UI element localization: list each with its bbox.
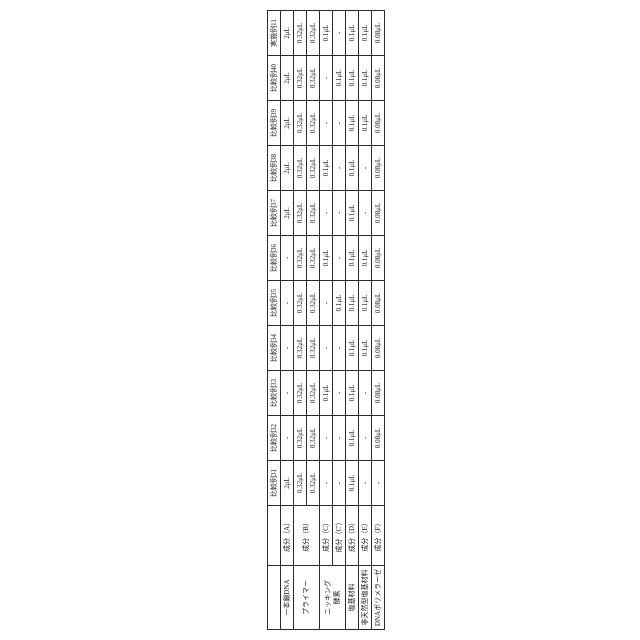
value-cell: - bbox=[372, 461, 385, 506]
value-cell: 2μL bbox=[281, 11, 294, 56]
value-cell: - bbox=[281, 236, 294, 281]
reagent-table: 比較例31比較例32比較例33比較例34比較例35比較例36比較例37比較例38… bbox=[267, 10, 385, 630]
value-cell: 0.32μL bbox=[294, 191, 307, 236]
value-cell: - bbox=[320, 416, 333, 461]
value-cell: 0.32μL bbox=[307, 371, 320, 416]
category-cell: ニッキング 酵素 bbox=[320, 566, 346, 630]
corner-header bbox=[268, 506, 281, 566]
table-row: ニッキング 酵素成分（C）--0.1μL--0.1μL-0.1μL--0.1μL bbox=[320, 11, 333, 630]
value-cell: 0.32μL bbox=[307, 236, 320, 281]
value-cell: 0.08μL bbox=[372, 236, 385, 281]
value-cell: - bbox=[359, 146, 372, 191]
value-cell: 0.1μL bbox=[346, 191, 359, 236]
value-cell: 0.32μL bbox=[307, 416, 320, 461]
table-row: プライマー成分（B）0.32μL0.32μL0.32μL0.32μL0.32μL… bbox=[294, 11, 307, 630]
col-header: 比較例34 bbox=[268, 326, 281, 371]
value-cell: 2μL bbox=[281, 191, 294, 236]
value-cell: 0.32μL bbox=[307, 56, 320, 101]
value-cell: 0.32μL bbox=[294, 416, 307, 461]
value-cell: 0.1μL bbox=[346, 56, 359, 101]
value-cell: 0.1μL bbox=[346, 371, 359, 416]
category-cell: 一本鎖DNA bbox=[281, 566, 294, 630]
value-cell: - bbox=[333, 191, 346, 236]
component-cell: 成分（C'） bbox=[333, 506, 346, 566]
value-cell: 2μL bbox=[281, 101, 294, 146]
col-header: 比較例31 bbox=[268, 461, 281, 506]
value-cell: - bbox=[333, 236, 346, 281]
value-cell: - bbox=[359, 416, 372, 461]
value-cell: 0.1μL bbox=[359, 11, 372, 56]
component-cell: 成分（F） bbox=[372, 506, 385, 566]
col-header: 比較例39 bbox=[268, 101, 281, 146]
value-cell: 0.32μL bbox=[307, 146, 320, 191]
value-cell: 0.32μL bbox=[294, 101, 307, 146]
value-cell: 0.1μL bbox=[320, 146, 333, 191]
value-cell: - bbox=[333, 371, 346, 416]
value-cell: 0.32μL bbox=[294, 281, 307, 326]
col-header: 比較例35 bbox=[268, 281, 281, 326]
corner-header bbox=[268, 566, 281, 630]
value-cell: - bbox=[333, 11, 346, 56]
col-header: 比較例36 bbox=[268, 236, 281, 281]
value-cell: 0.32μL bbox=[294, 236, 307, 281]
component-cell: 成分（C） bbox=[320, 506, 333, 566]
value-cell: 0.32μL bbox=[294, 146, 307, 191]
col-header: 比較例38 bbox=[268, 146, 281, 191]
value-cell: 0.1μL bbox=[333, 56, 346, 101]
value-cell: - bbox=[281, 416, 294, 461]
value-cell: - bbox=[333, 146, 346, 191]
value-cell: 0.1μL bbox=[346, 326, 359, 371]
value-cell: 0.1μL bbox=[359, 326, 372, 371]
table-body: 比較例31比較例32比較例33比較例34比較例35比較例36比較例37比較例38… bbox=[268, 11, 385, 630]
value-cell: 0.1μL bbox=[346, 236, 359, 281]
value-cell: 0.1μL bbox=[359, 56, 372, 101]
value-cell: - bbox=[281, 371, 294, 416]
table-row: 成分（C'）----0.1μL----0.1μL- bbox=[333, 11, 346, 630]
value-cell: 0.08μL bbox=[372, 416, 385, 461]
value-cell: 0.32μL bbox=[307, 326, 320, 371]
value-cell: 0.32μL bbox=[307, 11, 320, 56]
value-cell: - bbox=[333, 416, 346, 461]
value-cell: - bbox=[320, 191, 333, 236]
value-cell: 0.08μL bbox=[372, 11, 385, 56]
value-cell: - bbox=[320, 326, 333, 371]
col-header: 比較例33 bbox=[268, 371, 281, 416]
value-cell: 2μL bbox=[281, 56, 294, 101]
value-cell: - bbox=[320, 461, 333, 506]
value-cell: 0.32μL bbox=[307, 101, 320, 146]
value-cell: 0.32μL bbox=[294, 326, 307, 371]
value-cell: - bbox=[333, 101, 346, 146]
table-row: 塩基材料成分（D）0.1μL0.1μL0.1μL0.1μL0.1μL0.1μL0… bbox=[346, 11, 359, 630]
value-cell: - bbox=[281, 281, 294, 326]
value-cell: 0.1μL bbox=[359, 101, 372, 146]
value-cell: - bbox=[320, 281, 333, 326]
value-cell: 0.1μL bbox=[320, 11, 333, 56]
value-cell: 0.32μL bbox=[307, 461, 320, 506]
value-cell: 2μL bbox=[281, 146, 294, 191]
category-cell: DNAポリメラーゼ bbox=[372, 566, 385, 630]
value-cell: 0.08μL bbox=[372, 101, 385, 146]
value-cell: - bbox=[333, 461, 346, 506]
value-cell: 0.1μL bbox=[320, 371, 333, 416]
category-cell: 非天然型塩基材料 bbox=[359, 566, 372, 630]
col-header: 比較例40 bbox=[268, 56, 281, 101]
value-cell: 2μL bbox=[281, 461, 294, 506]
col-header: 比較例37 bbox=[268, 191, 281, 236]
value-cell: 0.08μL bbox=[372, 191, 385, 236]
value-cell: 0.1μL bbox=[359, 281, 372, 326]
value-cell: 0.1μL bbox=[346, 416, 359, 461]
value-cell: 0.32μL bbox=[294, 461, 307, 506]
value-cell: 0.08μL bbox=[372, 326, 385, 371]
value-cell: 0.1μL bbox=[333, 281, 346, 326]
value-cell: 0.08μL bbox=[372, 371, 385, 416]
value-cell: 0.1μL bbox=[346, 281, 359, 326]
value-cell: 0.1μL bbox=[346, 101, 359, 146]
value-cell: 0.1μL bbox=[320, 236, 333, 281]
value-cell: 0.32μL bbox=[307, 281, 320, 326]
value-cell: - bbox=[359, 461, 372, 506]
value-cell: - bbox=[333, 326, 346, 371]
value-cell: 0.1μL bbox=[359, 236, 372, 281]
value-cell: 0.1μL bbox=[346, 11, 359, 56]
value-cell: 0.32μL bbox=[294, 56, 307, 101]
value-cell: - bbox=[320, 101, 333, 146]
value-cell: - bbox=[359, 371, 372, 416]
value-cell: - bbox=[281, 326, 294, 371]
component-cell: 成分（E） bbox=[359, 506, 372, 566]
value-cell: - bbox=[359, 191, 372, 236]
value-cell: - bbox=[320, 56, 333, 101]
value-cell: 0.08μL bbox=[372, 146, 385, 191]
value-cell: 0.32μL bbox=[307, 191, 320, 236]
table-row: 非天然型塩基材料成分（E）---0.1μL0.1μL0.1μL--0.1μL0.… bbox=[359, 11, 372, 630]
header-row: 比較例31比較例32比較例33比較例34比較例35比較例36比較例37比較例38… bbox=[268, 11, 281, 630]
col-header: 比較例32 bbox=[268, 416, 281, 461]
table-row: DNAポリメラーゼ成分（F）-0.08μL0.08μL0.08μL0.08μL0… bbox=[372, 11, 385, 630]
rotated-table-container: 比較例31比較例32比較例33比較例34比較例35比較例36比較例37比較例38… bbox=[267, 10, 377, 630]
value-cell: 0.1μL bbox=[346, 461, 359, 506]
value-cell: 0.1μL bbox=[346, 146, 359, 191]
category-cell: 塩基材料 bbox=[346, 566, 359, 630]
component-cell: 成分（B） bbox=[294, 506, 320, 566]
col-header: 実施例11 bbox=[268, 11, 281, 56]
value-cell: 0.32μL bbox=[294, 11, 307, 56]
value-cell: 0.32μL bbox=[294, 371, 307, 416]
table-row: 一本鎖DNA成分（A）2μL-----2μL2μL2μL2μL2μL bbox=[281, 11, 294, 630]
component-cell: 成分（D） bbox=[346, 506, 359, 566]
value-cell: 0.08μL bbox=[372, 281, 385, 326]
category-cell: プライマー bbox=[294, 566, 320, 630]
component-cell: 成分（A） bbox=[281, 506, 294, 566]
value-cell: 0.08μL bbox=[372, 56, 385, 101]
